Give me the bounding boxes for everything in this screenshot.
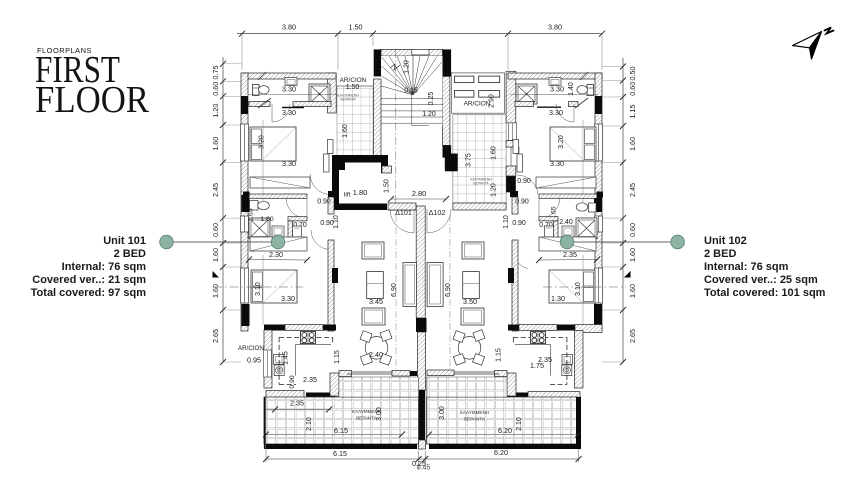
svg-text:1.15: 1.15 — [496, 348, 503, 362]
svg-text:1.60: 1.60 — [211, 284, 220, 298]
svg-text:1.20: 1.20 — [404, 60, 411, 74]
svg-text:0.90: 0.90 — [515, 199, 529, 206]
svg-text:6.20: 6.20 — [494, 448, 508, 457]
svg-text:1.30: 1.30 — [551, 294, 565, 303]
svg-text:AR/CION: AR/CION — [464, 101, 491, 108]
svg-text:Δ101: Δ101 — [395, 208, 412, 217]
svg-text:2.10: 2.10 — [516, 417, 523, 431]
svg-text:3.30: 3.30 — [281, 294, 295, 303]
svg-text:3.30: 3.30 — [550, 85, 564, 94]
svg-text:Unit 102: Unit 102 — [704, 235, 747, 247]
svg-text:3.00: 3.00 — [439, 406, 446, 420]
svg-text:0.60: 0.60 — [211, 223, 220, 237]
svg-text:0.75: 0.75 — [211, 66, 220, 80]
svg-text:0.90: 0.90 — [320, 220, 334, 227]
svg-text:1.45: 1.45 — [283, 351, 290, 365]
svg-text:1.50: 1.50 — [349, 23, 363, 32]
svg-text:3.30: 3.30 — [282, 108, 296, 117]
svg-text:0.60: 0.60 — [628, 223, 637, 237]
svg-text:3.75: 3.75 — [466, 153, 473, 167]
svg-text:Total covered: 97 sqm: Total covered: 97 sqm — [31, 287, 147, 299]
svg-text:1.60: 1.60 — [211, 137, 220, 151]
svg-text:1.60: 1.60 — [211, 248, 220, 262]
svg-text:1.60: 1.60 — [491, 146, 498, 160]
svg-text:Unit 101: Unit 101 — [103, 235, 146, 247]
svg-text:1.40: 1.40 — [568, 82, 575, 96]
svg-text:2.65: 2.65 — [211, 329, 220, 343]
svg-text:0.95: 0.95 — [247, 356, 261, 365]
svg-text:0.60: 0.60 — [211, 82, 220, 96]
svg-text:3.10: 3.10 — [575, 282, 582, 296]
svg-text:1.80: 1.80 — [353, 188, 368, 197]
svg-text:1.50: 1.50 — [384, 179, 391, 193]
svg-text:1.20: 1.20 — [211, 104, 220, 118]
svg-text:2.35: 2.35 — [290, 399, 304, 408]
svg-text:1.50: 1.50 — [346, 84, 360, 91]
svg-text:3.45: 3.45 — [369, 297, 383, 306]
svg-text:2.65: 2.65 — [628, 329, 637, 343]
svg-text:6.90: 6.90 — [391, 283, 398, 297]
svg-text:1.10: 1.10 — [333, 215, 340, 229]
svg-text:6.90: 6.90 — [445, 283, 452, 297]
svg-text:0.50: 0.50 — [628, 67, 637, 81]
svg-text:1.15: 1.15 — [628, 105, 637, 119]
svg-text:2.40: 2.40 — [559, 219, 573, 226]
svg-text:1.20: 1.20 — [422, 111, 436, 118]
svg-text:1.60: 1.60 — [628, 248, 637, 262]
svg-text:1.60: 1.60 — [628, 137, 637, 151]
svg-text:0.90: 0.90 — [289, 375, 296, 388]
svg-text:ΒΕΡΑΝΤΑ: ΒΕΡΑΝΤΑ — [356, 416, 378, 421]
svg-text:ΒΕΡΑΝΤΑ: ΒΕΡΑΝΤΑ — [340, 98, 356, 102]
svg-text:3.20: 3.20 — [558, 135, 565, 149]
svg-text:2 BED: 2 BED — [114, 248, 146, 260]
svg-text:1.60: 1.60 — [628, 284, 637, 298]
svg-text:0.90: 0.90 — [512, 220, 526, 227]
svg-text:2.80: 2.80 — [412, 189, 427, 198]
svg-text:lift: lift — [344, 192, 351, 199]
svg-text:Internal: 76 sqm: Internal: 76 sqm — [62, 261, 147, 273]
svg-text:1.60: 1.60 — [342, 124, 349, 138]
svg-text:1.20: 1.20 — [491, 183, 498, 197]
svg-text:6.15: 6.15 — [334, 426, 348, 435]
svg-text:ΚΑΛΥΜΜΕΝΗ: ΚΑΛΥΜΜΕΝΗ — [460, 410, 489, 415]
svg-text:AR/CION: AR/CION — [238, 345, 264, 352]
svg-text:1.65: 1.65 — [248, 208, 255, 221]
svg-text:2.45: 2.45 — [628, 183, 637, 197]
svg-text:Covered ver..: 25 sqm: Covered ver..: 25 sqm — [704, 274, 818, 286]
svg-text:3.30: 3.30 — [282, 85, 296, 94]
svg-text:1.75: 1.75 — [530, 361, 544, 370]
svg-text:AR/CION: AR/CION — [340, 77, 367, 84]
svg-text:0.60: 0.60 — [628, 82, 637, 96]
svg-text:ΒΕΡΑΝΤΑ: ΒΕΡΑΝΤΑ — [464, 417, 486, 422]
svg-text:3.30: 3.30 — [282, 159, 296, 168]
svg-text:ΚΑΛΥΜΜΕΝΗ: ΚΑΛΥΜΜΕΝΗ — [352, 409, 381, 414]
svg-text:2 BED: 2 BED — [704, 248, 736, 260]
svg-text:3.30: 3.30 — [550, 159, 564, 168]
svg-text:3.50: 3.50 — [463, 297, 477, 306]
svg-text:Covered ver..: 21 sqm: Covered ver..: 21 sqm — [32, 274, 146, 286]
svg-text:1.10: 1.10 — [503, 215, 510, 229]
svg-text:6.20: 6.20 — [498, 426, 512, 435]
svg-text:FLOOR: FLOOR — [35, 79, 150, 121]
svg-text:2.90: 2.90 — [489, 94, 496, 108]
svg-text:2.10: 2.10 — [306, 417, 313, 431]
svg-text:Δ102: Δ102 — [429, 208, 446, 217]
svg-text:Internal: 76 sqm: Internal: 76 sqm — [704, 261, 789, 273]
svg-text:6.15: 6.15 — [333, 449, 347, 458]
svg-text:ΒΕΡΑΝΤΑ: ΒΕΡΑΝΤΑ — [473, 182, 489, 186]
svg-text:2.30: 2.30 — [269, 250, 283, 259]
svg-text:2.40: 2.40 — [369, 350, 383, 359]
svg-text:1.60: 1.60 — [260, 216, 273, 223]
svg-text:3.30: 3.30 — [549, 108, 563, 117]
svg-text:2.45: 2.45 — [211, 183, 220, 197]
svg-text:Total covered: 101 sqm: Total covered: 101 sqm — [704, 287, 826, 299]
svg-text:0.25: 0.25 — [428, 92, 435, 106]
svg-text:2.35: 2.35 — [303, 375, 317, 384]
svg-text:2.35: 2.35 — [563, 250, 577, 259]
svg-text:3.10: 3.10 — [255, 282, 262, 296]
svg-text:3.80: 3.80 — [282, 23, 296, 32]
svg-text:0.90: 0.90 — [317, 199, 331, 206]
svg-text:0.90: 0.90 — [517, 178, 531, 185]
svg-text:0.15: 0.15 — [404, 87, 418, 94]
svg-text:3.20: 3.20 — [259, 135, 266, 149]
svg-text:3.80: 3.80 — [548, 23, 562, 32]
svg-text:1.15: 1.15 — [334, 350, 341, 364]
svg-text:0.45: 0.45 — [417, 465, 431, 472]
